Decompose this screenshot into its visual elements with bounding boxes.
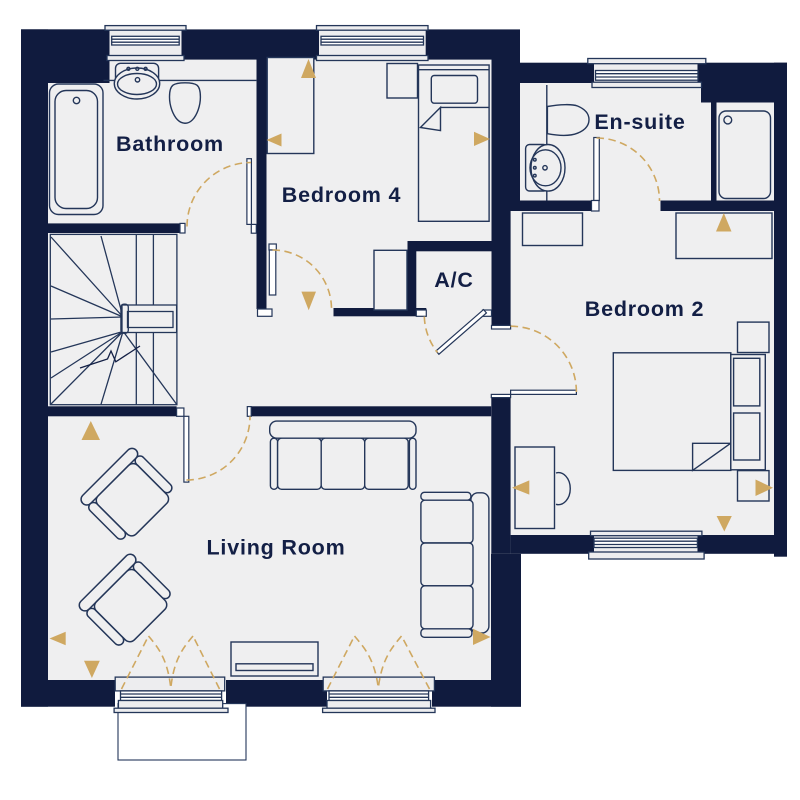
svg-text:Bathroom: Bathroom xyxy=(116,132,224,156)
svg-text:A/C: A/C xyxy=(434,268,473,292)
svg-text:Bedroom 4: Bedroom 4 xyxy=(282,183,402,207)
svg-text:Bedroom 2: Bedroom 2 xyxy=(585,297,705,321)
svg-text:Living Room: Living Room xyxy=(207,536,346,560)
svg-text:En-suite: En-suite xyxy=(594,110,685,134)
